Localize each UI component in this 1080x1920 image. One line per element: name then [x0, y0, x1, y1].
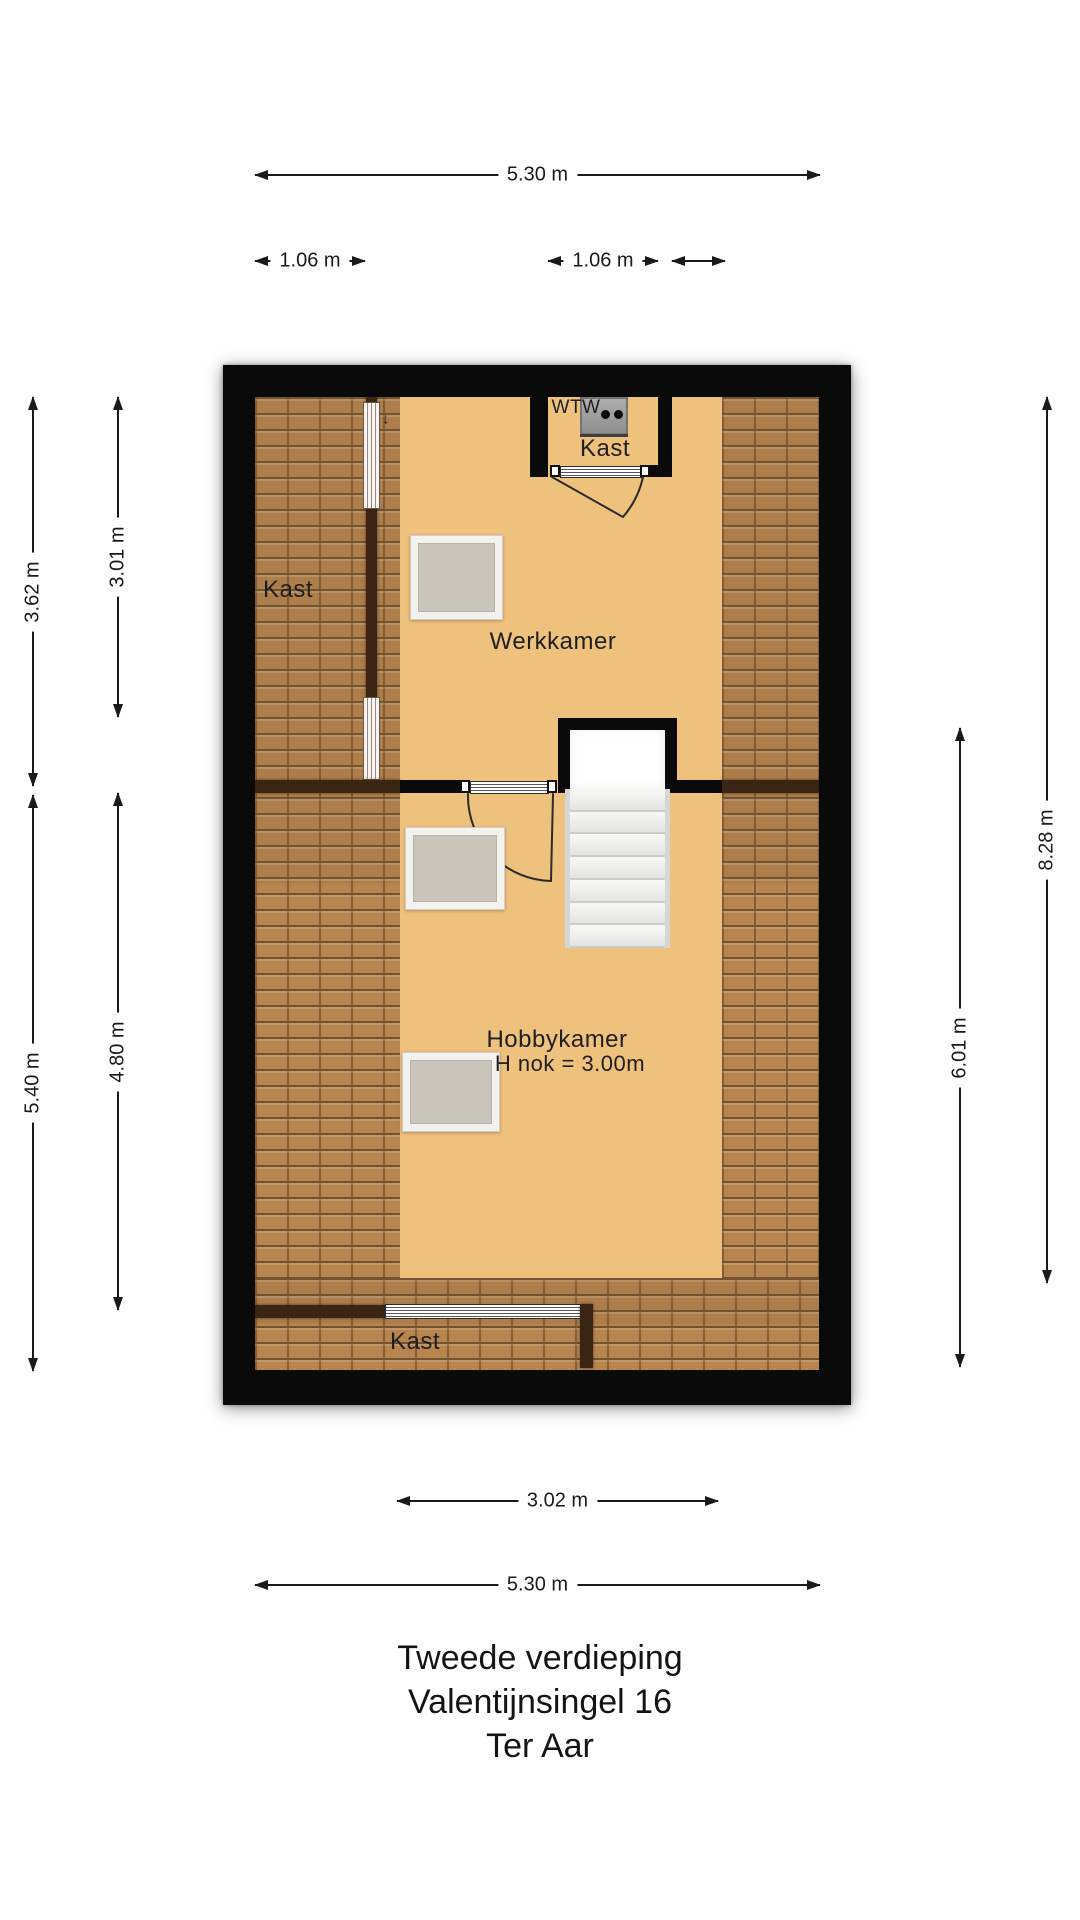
door-swing-mark: ↓ [382, 411, 390, 428]
floor-title-line2: Valentijnsingel 16 [0, 1680, 1080, 1724]
wtw-closet-wall-stub [650, 465, 658, 477]
arrow-up-icon [113, 396, 123, 410]
dim-label: 3.01 m [106, 517, 131, 596]
arrow-up-icon [28, 396, 38, 410]
dim-label: 3.62 m [21, 552, 46, 631]
arrow-up-icon [28, 794, 38, 808]
floor-title-line3: Ter Aar [0, 1724, 1080, 1768]
wtw-closet-wall-left [530, 397, 548, 477]
wtw-closet-wall-right [658, 397, 672, 477]
arrow-left-icon [254, 256, 268, 266]
label-kast-left: Kast [263, 576, 313, 604]
stair-tread [570, 880, 665, 903]
dim-label: 8.28 m [1035, 800, 1060, 879]
roof-window-1 [410, 535, 503, 620]
arrow-left-icon [671, 256, 685, 266]
arrow-left-icon [254, 1580, 268, 1590]
label-werkkamer: Werkkamer [490, 628, 617, 656]
arrow-right-icon [807, 170, 821, 180]
kast-left-sliding-door-lower [363, 697, 380, 780]
arrow-down-icon [28, 773, 38, 787]
sloped-roof-right [722, 397, 819, 1370]
dim-label: 4.80 m [106, 1012, 131, 1091]
staircase [565, 789, 670, 948]
floor-area: ↓ [255, 397, 819, 1370]
arrow-right-icon [352, 256, 366, 266]
arrow-left-icon [254, 170, 268, 180]
divider-wall-left [400, 780, 460, 793]
divider-wall-left-knee [255, 780, 400, 793]
dim-label: 3.02 m [518, 1489, 597, 1514]
floorplan-outer-wall: ↓ [223, 365, 851, 1405]
stair-tread [570, 834, 665, 857]
arrow-down-icon [113, 1297, 123, 1311]
door-post [460, 780, 470, 793]
dim-label: 5.30 m [498, 1573, 577, 1598]
dim-label: 5.30 m [498, 163, 577, 188]
floor-title-line1: Tweede verdieping [0, 1636, 1080, 1680]
wtw-dot-icon [601, 410, 610, 419]
divider-wall-right-knee [722, 780, 819, 793]
arrow-down-icon [955, 1354, 965, 1368]
label-hobbykamer-height: H nok = 3.00m [495, 1051, 645, 1077]
kast-left-sliding-door-upper [363, 402, 380, 509]
arrow-up-icon [955, 727, 965, 741]
divider-wall-right [677, 780, 722, 793]
label-wtw: WTW [552, 397, 601, 419]
label-hobbykamer: Hobbykamer [486, 1026, 627, 1054]
arrow-left-icon [396, 1496, 410, 1506]
sloped-roof-bottom [255, 1278, 819, 1370]
floorplan-page: 5.30 m 1.06 m 1.06 m 3.62 m 3.01 m 5.40 … [0, 0, 1080, 1920]
label-kast-top: Kast [580, 435, 630, 463]
dim-label: 1.06 m [563, 249, 642, 274]
roof-window-pane [413, 835, 497, 902]
dim-label: 6.01 m [948, 1008, 973, 1087]
arrow-right-icon [645, 256, 659, 266]
kast-bottom-sliding-door [385, 1304, 582, 1319]
arrow-left-icon [547, 256, 561, 266]
sloped-roof-left [255, 397, 400, 1370]
stair-tread [570, 925, 665, 948]
arrow-down-icon [113, 704, 123, 718]
stair-landing [570, 730, 665, 789]
arrow-up-icon [113, 792, 123, 806]
kast-bottom-wall-right [580, 1304, 593, 1368]
floor-title: Tweede verdieping Valentijnsingel 16 Ter… [0, 1636, 1080, 1768]
dim-label: 5.40 m [21, 1043, 46, 1122]
roof-window-pane [418, 543, 495, 612]
stairwell-wall-top [558, 718, 677, 730]
stairwell-wall-left [558, 718, 570, 793]
roof-window-2 [405, 827, 505, 910]
arrow-down-icon [1042, 1270, 1052, 1284]
stairwell-wall-right [665, 718, 677, 793]
roof-window-3 [402, 1052, 500, 1132]
arrow-right-icon [807, 1580, 821, 1590]
label-kast-bottom: Kast [390, 1328, 440, 1356]
dim-label: 1.06 m [270, 249, 349, 274]
wtw-dot-icon [614, 410, 623, 419]
stair-tread [570, 857, 665, 880]
stair-tread [570, 789, 665, 812]
stair-tread [570, 903, 665, 926]
stair-tread [570, 812, 665, 835]
arrow-up-icon [1042, 396, 1052, 410]
arrow-down-icon [28, 1358, 38, 1372]
arrow-right-icon [712, 256, 726, 266]
roof-window-pane [410, 1060, 492, 1124]
arrow-right-icon [705, 1496, 719, 1506]
wtw-closet-door-swing [550, 475, 650, 525]
door-post [547, 780, 557, 793]
kast-bottom-wall [255, 1305, 385, 1318]
